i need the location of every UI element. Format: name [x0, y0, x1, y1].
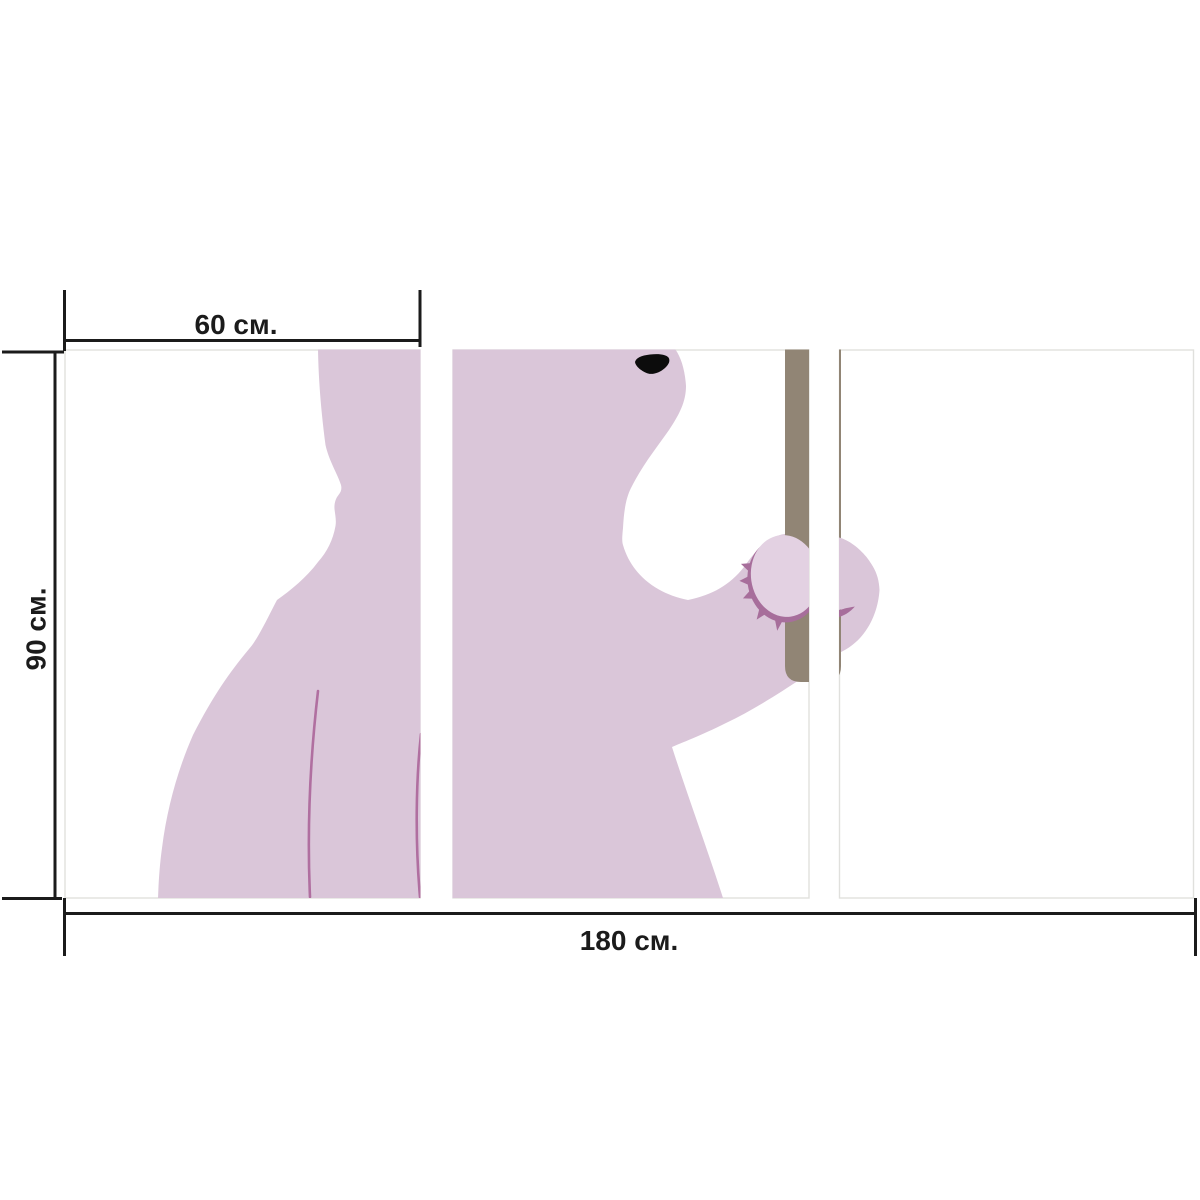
- svg-text:60 см.: 60 см.: [195, 309, 278, 340]
- svg-text:90 см.: 90 см.: [21, 588, 52, 671]
- svg-text:180 см.: 180 см.: [580, 925, 679, 956]
